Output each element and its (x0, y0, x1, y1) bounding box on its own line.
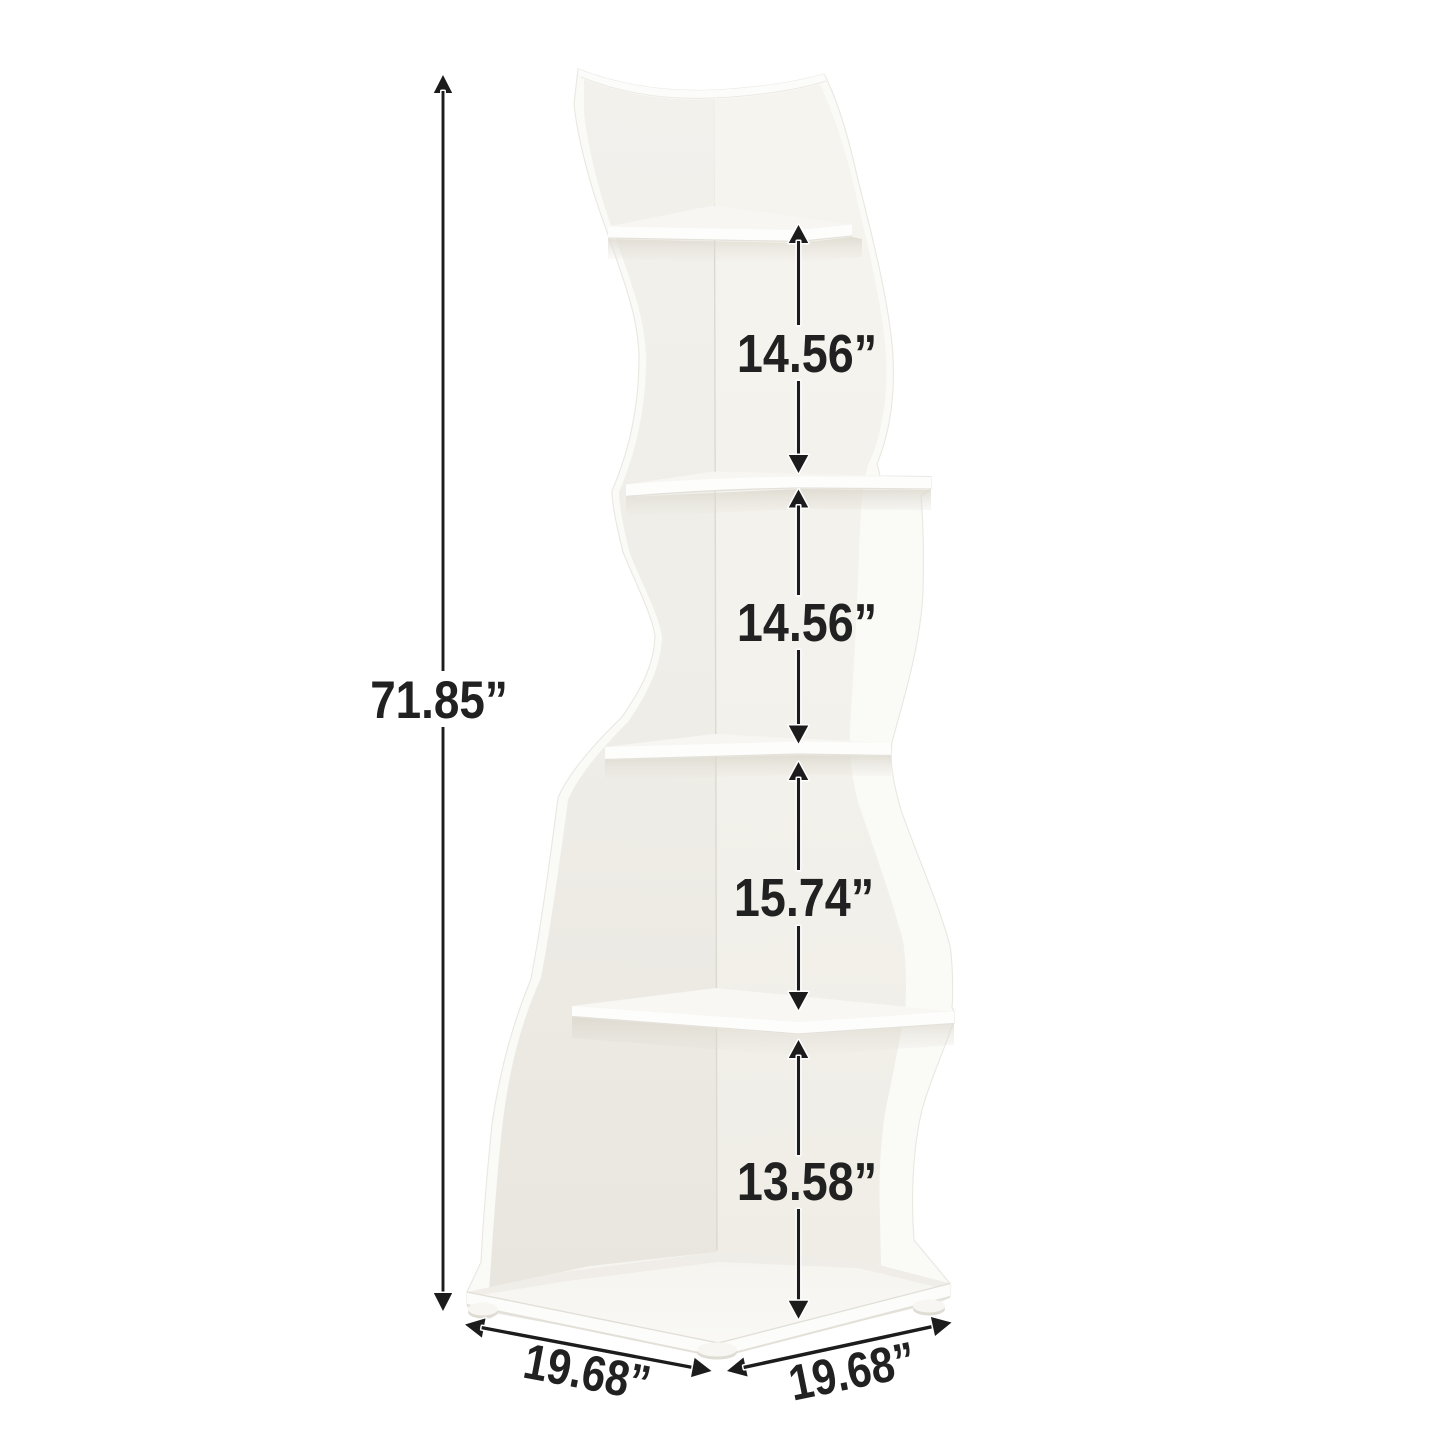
svg-text:14.56”: 14.56” (737, 323, 877, 384)
svg-text:14.56”: 14.56” (737, 592, 877, 653)
svg-text:15.74”: 15.74” (734, 867, 874, 928)
svg-text:13.58”: 13.58” (737, 1151, 877, 1212)
svg-text:71.85”: 71.85” (370, 670, 508, 730)
